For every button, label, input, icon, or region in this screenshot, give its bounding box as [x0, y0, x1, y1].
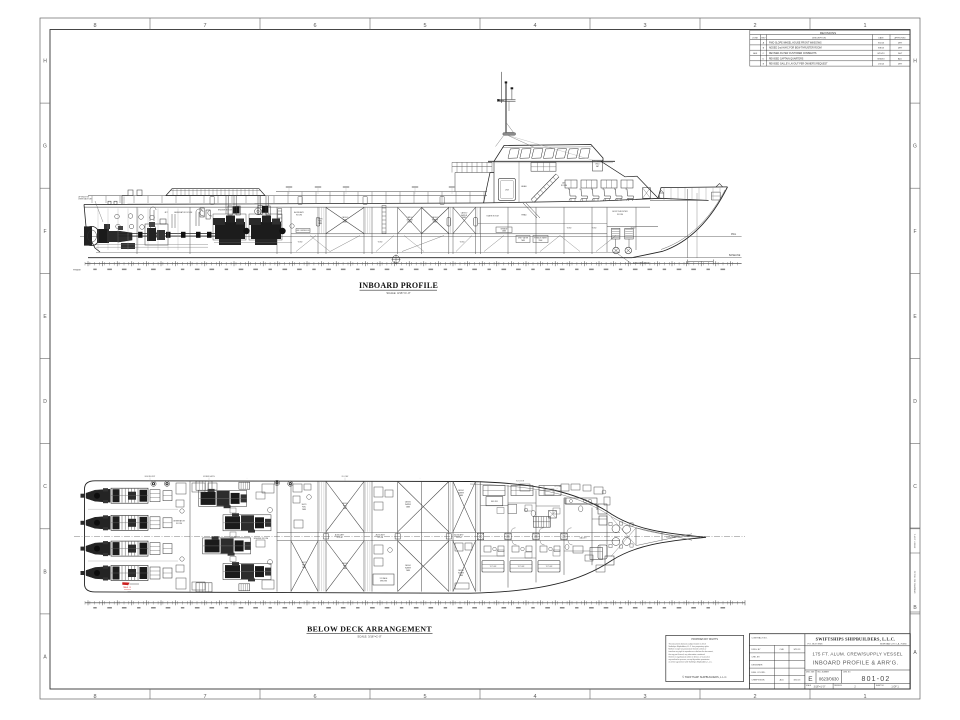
- svg-text:P.O. BOX 3908: P.O. BOX 3908: [808, 644, 824, 646]
- svg-text:H: H: [913, 59, 917, 65]
- svg-text:OVER EACH JET: OVER EACH JET: [78, 198, 93, 201]
- svg-text:F: F: [913, 229, 916, 235]
- svg-text:REVISIONS: REVISIONS: [820, 31, 836, 35]
- svg-text:ALD: ALD: [898, 57, 903, 60]
- svg-text:FUEL: FUEL: [302, 506, 306, 508]
- svg-text:CHK. BY: CHK. BY: [752, 657, 761, 659]
- svg-text:8/8/13: 8/8/13: [878, 48, 885, 50]
- svg-text:DATE: DATE: [878, 37, 884, 40]
- svg-text:Swiftships Shipbuilders,L.L.C.: Swiftships Shipbuilders,L.L.C. has propr…: [669, 645, 710, 648]
- svg-text:transfers any right to reprodu: transfers any right to reproduce or disc…: [669, 650, 714, 653]
- svg-text:© SWIFTSHIP SHIPBUILDERS, L.: © SWIFTSHIP SHIPBUILDERS, L.L.C.: [682, 675, 727, 679]
- svg-text:ROOM: ROOM: [561, 185, 568, 187]
- svg-text:GEN: GEN: [753, 53, 758, 55]
- svg-text:1: 1: [863, 23, 866, 29]
- svg-text:REVISED AS PER CUSTOMER COMMEN: REVISED AS PER CUSTOMER COMMENTS: [769, 52, 817, 55]
- svg-text:ROOM: ROOM: [176, 523, 182, 525]
- svg-text:ROOM: ROOM: [456, 537, 462, 539]
- svg-text:BOW THRUSTER: BOW THRUSTER: [612, 211, 628, 213]
- svg-text:DHT: DHT: [898, 53, 903, 55]
- svg-text:REVISED CAPTAIN QUARTERS: REVISED CAPTAIN QUARTERS: [769, 57, 804, 60]
- svg-text:G: G: [43, 144, 47, 150]
- svg-text:PROPRIETARY RIGHTS: PROPRIETARY RIGHTS: [691, 638, 718, 641]
- svg-text:GENERATOR ROOM: GENERATOR ROOM: [174, 211, 193, 214]
- svg-text:AUXILIARY: AUXILIARY: [335, 533, 345, 536]
- svg-text:DWG. NO.: DWG. NO.: [843, 671, 851, 673]
- svg-text:TANK: TANK: [343, 221, 348, 224]
- svg-text:HEAD: HEAD: [521, 185, 527, 188]
- svg-text:INBOARD PROFILE: INBOARD PROFILE: [359, 281, 438, 290]
- svg-text:ENG RM VENT: ENG RM VENT: [145, 476, 156, 478]
- svg-text:H: H: [43, 59, 47, 65]
- svg-text:STATE ROOM: STATE ROOM: [486, 215, 499, 218]
- svg-text:7: 7: [203, 23, 206, 29]
- svg-text:5: 5: [423, 694, 426, 700]
- svg-text:7: 7: [203, 694, 206, 700]
- svg-text:LKR: LKR: [505, 190, 509, 192]
- svg-text:4: 4: [533, 23, 536, 29]
- svg-text:CHIEF ENGR.: CHIEF ENGR.: [752, 680, 766, 682]
- svg-text:3/11/13: 3/11/13: [794, 680, 802, 682]
- svg-text:6: 6: [313, 694, 316, 700]
- svg-text:KAT: KAT: [596, 165, 599, 168]
- svg-text:D: D: [43, 399, 47, 405]
- svg-text:ZONE: ZONE: [752, 38, 758, 40]
- svg-text:VOID: VOID: [460, 241, 465, 243]
- svg-text:ROOM: ROOM: [337, 537, 343, 539]
- svg-text:INBOARD PROFILE & ARR'G.: INBOARD PROFILE & ARR'G.: [813, 660, 899, 666]
- svg-text:175 FT. ALUM. CREW/SUPPLY: 175 FT. ALUM. CREW/SUPPLY VESSEL: [812, 651, 902, 656]
- svg-text:SCALE: 3/16"=1'-0": SCALE: 3/16"=1'-0": [386, 291, 410, 295]
- svg-text:VOID: VOID: [298, 241, 303, 243]
- svg-text:CHD: CHD: [779, 649, 784, 651]
- svg-text:3: 3: [643, 23, 646, 29]
- svg-text:1: 1: [863, 694, 866, 700]
- svg-text:HEAD: HEAD: [521, 214, 527, 217]
- svg-text:C: C: [43, 484, 47, 490]
- svg-text:FOREPEAK: FOREPEAK: [666, 536, 676, 539]
- svg-text:2: 2: [753, 694, 756, 700]
- svg-text:3/16"=1'-0": 3/16"=1'-0": [814, 685, 826, 688]
- svg-text:or written agreement with Swif: or written agreement with Swiftships Shi…: [669, 661, 713, 664]
- svg-text:BASELINE: BASELINE: [729, 254, 741, 257]
- svg-text:DESIGNER: DESIGNER: [752, 664, 763, 666]
- svg-text:REVISION: REVISION: [834, 685, 842, 687]
- svg-text:APPROVED: APPROVED: [894, 37, 906, 40]
- svg-text:TANK #1: TANK #1: [123, 586, 132, 589]
- svg-text:2/5/14: 2/5/14: [878, 64, 885, 66]
- svg-text:SWIFTSHIPS SHIPBUILDERS, L.L.C: SWIFTSHIPS SHIPBUILDERS, L.L.C.: [816, 636, 896, 641]
- svg-text:VOID: VOID: [378, 241, 383, 243]
- svg-text:TOT LKR: TOT LKR: [490, 566, 498, 568]
- svg-text:F: F: [43, 229, 46, 235]
- svg-text:8/1/13: 8/1/13: [878, 42, 885, 44]
- svg-text:FRAME: FRAME: [73, 269, 81, 272]
- svg-text:GALLEY: GALLEY: [579, 536, 587, 539]
- svg-text:ENGINE ROOM: ENGINE ROOM: [218, 210, 232, 212]
- svg-text:VOID: VOID: [592, 227, 597, 229]
- svg-text:any method or process, except: any method or process, except by written…: [669, 658, 710, 661]
- svg-text:ENGINE ROOM: ENGINE ROOM: [254, 538, 269, 540]
- svg-text:MORGAN CITY, LA. 70380: MORGAN CITY, LA. 70380: [880, 643, 907, 646]
- svg-text:8/30/13: 8/30/13: [878, 58, 886, 60]
- svg-text:TANK: TANK: [462, 216, 467, 219]
- svg-text:ENG. COORD.: ENG. COORD.: [752, 672, 766, 674]
- svg-text:G: G: [913, 144, 917, 150]
- svg-text:D: D: [913, 399, 917, 405]
- svg-text:ROOM: ROOM: [617, 214, 623, 216]
- svg-text:ADDED 2nd HVAC FOR BOW THRUSTE: ADDED 2nd HVAC FOR BOW THRUSTER ROOM: [769, 47, 822, 50]
- svg-text:DWG. BY: DWG. BY: [752, 649, 762, 651]
- svg-text:HULL NUMBER: HULL NUMBER: [818, 671, 830, 673]
- svg-text:DHT: DHT: [898, 64, 903, 66]
- svg-text:8: 8: [93, 23, 96, 29]
- svg-text:DWG. SIZE: DWG. SIZE: [806, 671, 814, 673]
- svg-text:W.T. DOOR: W.T. DOOR: [516, 481, 525, 483]
- svg-text:6: 6: [313, 23, 316, 29]
- svg-text:8/19/13: 8/19/13: [878, 53, 886, 55]
- svg-text:SHIPS: SHIPS: [302, 504, 307, 506]
- svg-text:AUXILIARY: AUXILIARY: [376, 533, 386, 536]
- svg-text:SHELVES: SHELVES: [380, 580, 387, 582]
- svg-text:SHEET NO.: SHEET NO.: [876, 685, 885, 687]
- svg-text:4: 4: [533, 694, 536, 700]
- svg-text:2: 2: [753, 23, 756, 29]
- svg-text:ROOM: ROOM: [296, 215, 302, 217]
- svg-text:0623/0630: 0623/0630: [819, 676, 839, 681]
- svg-text:ALD: ALD: [780, 679, 785, 682]
- svg-text:TANK: TANK: [433, 221, 438, 224]
- svg-text:DWL: DWL: [731, 234, 737, 236]
- svg-text:SCALE: 3/16"=1'-0": SCALE: 3/16"=1'-0": [357, 635, 381, 639]
- svg-text:DHT: DHT: [898, 48, 903, 50]
- svg-text:REVISED GALLEY LAYOUT PER OWNE: REVISED GALLEY LAYOUT PER OWNER'S REQUES…: [769, 63, 828, 66]
- svg-text:TOT LKR: TOT LKR: [518, 566, 526, 568]
- svg-text:SHIPS: SHIPS: [302, 562, 307, 564]
- svg-text:TANK: TANK: [407, 221, 412, 224]
- svg-text:SHEET 1 OF 1: SHEET 1 OF 1: [915, 533, 917, 548]
- svg-text:801-02: 801-02: [862, 676, 891, 683]
- svg-text:8: 8: [93, 694, 96, 700]
- svg-text:FUEL: FUEL: [302, 564, 306, 566]
- svg-text:5: 5: [423, 23, 426, 29]
- svg-text:E: E: [808, 676, 813, 683]
- svg-text:C: C: [913, 484, 917, 490]
- svg-text:BED RM: BED RM: [491, 501, 498, 503]
- svg-text:BELOW DECK ARRANGEMENT: BELOW DECK ARRANGEMENT: [307, 625, 432, 634]
- svg-text:A/C: A/C: [562, 181, 566, 184]
- svg-text:CONTRACT NO.: CONTRACT NO.: [752, 636, 768, 639]
- svg-text:DESCRIPTION: DESCRIPTION: [812, 38, 826, 40]
- svg-text:FWD SLOPE WHEEL HOUSE FRONT WI: FWD SLOPE WHEEL HOUSE FRONT WINDOWS: [769, 42, 822, 44]
- svg-text:REV: REV: [761, 38, 766, 40]
- svg-text:TOT LKR: TOT LKR: [546, 566, 554, 568]
- svg-text:DRAWING NO. 801-02: DRAWING NO. 801-02: [914, 570, 917, 593]
- svg-text:VOID: VOID: [567, 227, 572, 229]
- svg-text:3: 3: [643, 694, 646, 700]
- svg-text:DHT: DHT: [898, 42, 903, 44]
- svg-text:ROOM: ROOM: [378, 537, 384, 539]
- svg-text:3/11/13: 3/11/13: [794, 649, 802, 651]
- svg-text:AUXILIARY: AUXILIARY: [454, 533, 464, 536]
- svg-text:the any part thereof, any info: the any part thereof, any information co…: [669, 653, 705, 656]
- svg-text:1 OF 1: 1 OF 1: [891, 686, 899, 689]
